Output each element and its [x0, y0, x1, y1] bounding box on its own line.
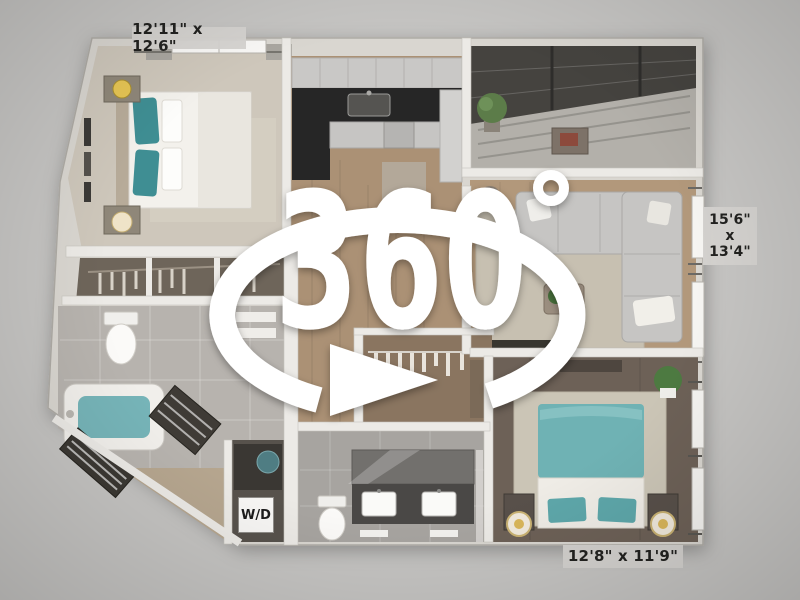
window: [692, 468, 704, 530]
pillow: [162, 148, 182, 190]
floor-plan-viewer: 360 12'11" x 12'6" 15'6" x 13'4" 12'8" x…: [0, 0, 800, 600]
dimension-right-line2: x: [725, 228, 734, 244]
lamp: [113, 80, 131, 98]
dimension-right-line1: 15'6": [709, 212, 751, 228]
bathtub-water: [78, 396, 150, 438]
wall-art: [84, 118, 91, 146]
pillow: [547, 497, 586, 523]
floor-plan-render: 360: [0, 0, 800, 600]
bedroom-1: [68, 40, 292, 250]
dimension-label-bottom: 12'8" x 11'9": [563, 545, 683, 568]
bath-mat: [360, 530, 388, 537]
dimension-label-top: 12'11" x 12'6": [132, 27, 246, 49]
pillow: [646, 200, 671, 225]
bathroom-2: [298, 430, 486, 542]
window: [692, 390, 704, 448]
dishwasher: [384, 122, 414, 148]
dimension-label-right: 15'6" x 13'4": [703, 207, 757, 265]
toilet-tank: [318, 496, 346, 507]
sink: [362, 492, 396, 516]
washer-dryer-label: W/D: [238, 497, 274, 533]
rotation-360-badge[interactable]: 360: [222, 153, 572, 416]
pillow: [132, 149, 159, 197]
lamp: [112, 212, 132, 232]
toilet-tank: [104, 312, 138, 325]
upper-cabinets: [292, 58, 462, 88]
faucet: [66, 410, 74, 418]
kitchen-sink: [348, 94, 390, 116]
dimension-right-line3: 13'4": [709, 244, 751, 260]
washer-drum: [257, 451, 279, 473]
wall-art: [84, 182, 91, 202]
sink: [422, 492, 456, 516]
dresser: [560, 360, 622, 372]
towel-shelf: [236, 328, 276, 338]
planter: [660, 388, 676, 398]
bed-headboard: [116, 94, 129, 206]
window: [692, 282, 704, 356]
toilet: [319, 508, 345, 540]
rotation-360-label: 360: [275, 153, 528, 372]
wall-art: [84, 152, 91, 176]
pillow: [597, 497, 636, 523]
pillow: [132, 97, 159, 145]
book: [560, 133, 578, 146]
pillow: [162, 100, 182, 142]
bath-mat: [430, 530, 458, 537]
toilet: [106, 324, 136, 364]
towel-shelf: [236, 312, 276, 322]
blanket: [632, 295, 675, 326]
closet-door-frame: [146, 258, 152, 302]
shower-glass: [476, 450, 483, 542]
